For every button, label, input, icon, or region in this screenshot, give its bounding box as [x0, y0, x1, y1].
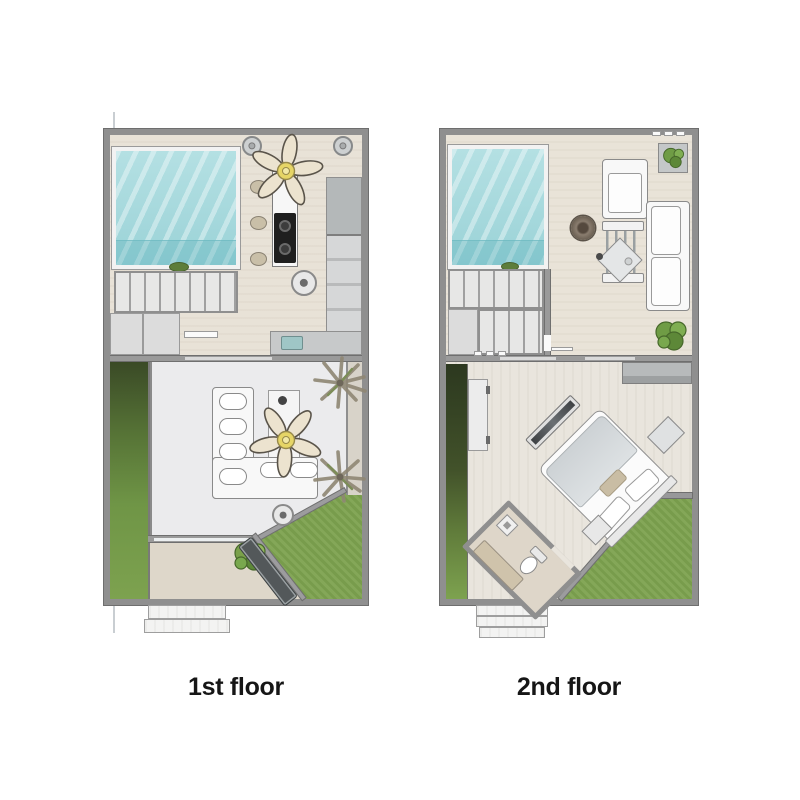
- potted-plant-icon: [658, 142, 690, 174]
- ceiling-light-icon: [333, 136, 353, 156]
- door-opening: [544, 335, 551, 351]
- entry-step: [479, 627, 545, 638]
- divider-wall-window: [585, 357, 635, 360]
- closet-divider: [142, 314, 144, 354]
- entry-step: [144, 619, 230, 633]
- plan-second-floor: [440, 129, 698, 605]
- refrigerator: [327, 178, 361, 236]
- staircase-upper: [448, 269, 544, 309]
- cabinet-shelves: [327, 236, 361, 336]
- property-line: [113, 605, 115, 633]
- hinge: [486, 386, 490, 394]
- bar-stool: [250, 216, 267, 230]
- burner: [279, 220, 291, 232]
- planter-strip: [446, 364, 468, 599]
- pool-edge-plant: [170, 263, 188, 271]
- palm-plant-icon: [308, 445, 372, 509]
- stove: [274, 213, 296, 263]
- door-leaf: [184, 331, 218, 338]
- armchair: [602, 159, 648, 219]
- first-floor-label: 1st floor: [104, 673, 368, 702]
- plan-first-floor: [104, 129, 368, 605]
- burner: [279, 243, 291, 255]
- desk-shelf: [622, 362, 692, 384]
- sink: [281, 336, 303, 350]
- chair-back: [602, 221, 644, 231]
- pool-bench: [452, 240, 544, 265]
- kettle: [596, 253, 603, 260]
- vent-tab: [676, 131, 685, 136]
- floorplan-canvas: 1st floor 2nd floor: [0, 0, 800, 800]
- sofa: [646, 201, 690, 311]
- armchair-seat: [608, 173, 642, 213]
- vent-tab: [664, 131, 673, 136]
- entry-step: [148, 605, 226, 619]
- divider-wall-window: [500, 357, 556, 360]
- vent-tab: [652, 131, 661, 136]
- seat-cushion: [219, 443, 247, 460]
- seat-cushion: [219, 393, 247, 410]
- bar-stool: [250, 252, 267, 266]
- staircase-lower: [478, 309, 544, 355]
- table-item: [623, 256, 634, 267]
- palm-plant-icon: [308, 351, 372, 415]
- garden-bush-icon: [652, 316, 692, 354]
- storage-closet: [110, 313, 180, 355]
- round-rug: [571, 216, 595, 240]
- vent-tab: [498, 351, 506, 356]
- floor-speaker: [272, 504, 294, 526]
- pool-bench: [116, 240, 236, 265]
- swimming-pool: [112, 147, 240, 269]
- vent-tab: [486, 351, 494, 356]
- kitchen-tall-counters: [326, 177, 362, 337]
- vent-tab: [474, 351, 482, 356]
- sofa-cushion: [651, 257, 681, 306]
- seat-cushion: [219, 468, 247, 485]
- hinge: [486, 436, 490, 444]
- second-floor-label: 2nd floor: [440, 673, 698, 702]
- drain: [503, 521, 511, 529]
- seat-cushion: [219, 418, 247, 435]
- staircase: [114, 271, 238, 313]
- floor-speaker: [291, 270, 317, 296]
- garden-grass-left: [110, 362, 150, 599]
- swimming-pool: [448, 145, 548, 269]
- sofa-cushion: [651, 206, 681, 255]
- stair-landing: [448, 309, 478, 355]
- door-leaf: [551, 347, 573, 351]
- divider-wall-window: [185, 357, 272, 360]
- divider-wall: [446, 355, 692, 362]
- ceiling-fan-icon: [248, 133, 324, 209]
- property-line: [113, 112, 115, 129]
- wardrobe: [468, 379, 488, 451]
- shower-drain: [496, 514, 519, 537]
